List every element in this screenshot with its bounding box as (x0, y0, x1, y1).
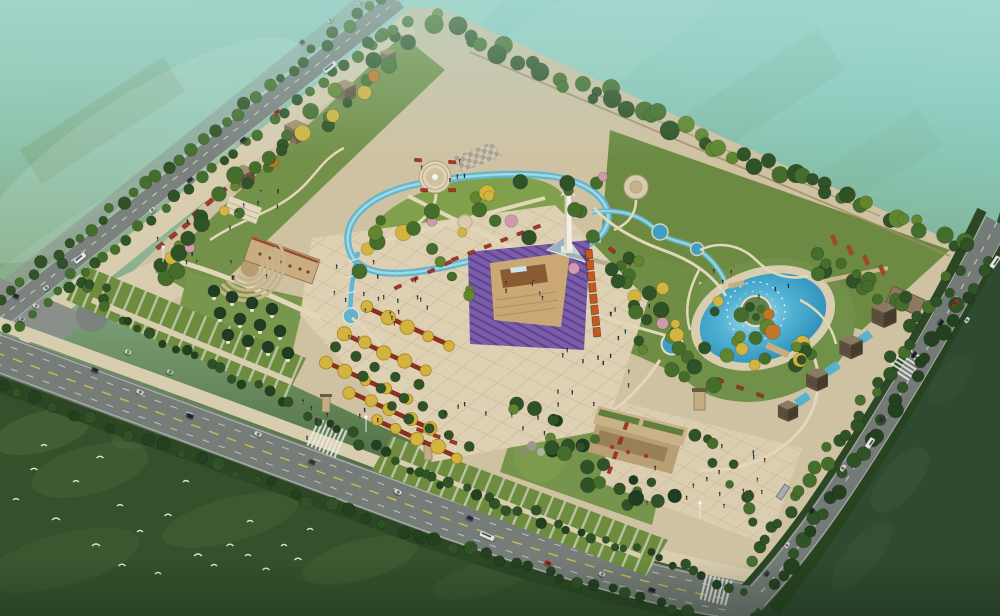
tree (12, 388, 22, 398)
tree (29, 270, 39, 280)
tree (352, 264, 367, 279)
golden-tree (420, 365, 431, 376)
tree (121, 235, 131, 245)
person-head (358, 336, 360, 338)
tree (501, 506, 511, 516)
tree (28, 310, 36, 318)
person (302, 399, 304, 403)
person (359, 413, 361, 417)
person-head (537, 415, 539, 417)
person (758, 294, 760, 298)
person-body (365, 310, 366, 313)
person-body (459, 160, 460, 163)
tree (513, 506, 523, 516)
person-head (186, 260, 188, 262)
tree (447, 272, 456, 281)
person (750, 490, 752, 494)
tree (481, 548, 492, 559)
person-head (157, 237, 159, 239)
person-body (753, 456, 754, 459)
tree (184, 184, 194, 194)
tree (576, 442, 585, 451)
person-head (625, 329, 627, 331)
person-body (731, 271, 732, 274)
person (557, 389, 559, 393)
person-body (277, 206, 278, 209)
tree (668, 489, 682, 503)
person (562, 353, 564, 357)
person-head (648, 304, 650, 306)
tree (836, 258, 847, 269)
person-body (557, 391, 558, 394)
golden-tree (390, 423, 400, 433)
person (719, 492, 721, 496)
golden-tree (452, 453, 463, 464)
tree (593, 476, 605, 488)
person (628, 369, 630, 373)
round-plaza-b-inner (630, 181, 642, 193)
person (363, 292, 365, 296)
person-head (311, 406, 313, 408)
tree (149, 170, 161, 182)
person-head (377, 274, 379, 276)
person-body (358, 337, 359, 340)
person-body (721, 445, 722, 448)
gate-tower-south (694, 390, 705, 410)
tree (602, 536, 609, 543)
person-body (444, 434, 445, 437)
person-body (593, 403, 594, 406)
tree (706, 378, 721, 393)
person (358, 336, 360, 340)
person-body (303, 401, 304, 404)
person-head (236, 211, 238, 213)
courtyard-flower-3 (644, 454, 648, 458)
tree (361, 514, 371, 524)
tree (586, 230, 599, 243)
golden-tree (338, 364, 352, 378)
arch-4 (288, 264, 291, 267)
person-body (415, 279, 416, 282)
tree (859, 196, 872, 209)
person (260, 190, 262, 194)
courtyard-flower-2 (626, 450, 630, 454)
tree (215, 362, 225, 372)
tree (34, 255, 47, 268)
person-body (743, 490, 744, 493)
tree (425, 424, 435, 434)
bench-top (588, 283, 596, 293)
tree (855, 395, 866, 406)
person-body (427, 307, 428, 310)
person-head (378, 297, 380, 299)
person (764, 458, 766, 462)
tree (300, 496, 312, 508)
tree (793, 486, 804, 497)
pond-1 (652, 224, 668, 240)
person-body (567, 349, 568, 352)
person (539, 292, 541, 296)
bench-planter (587, 271, 596, 282)
tree (937, 227, 954, 244)
person-head (758, 294, 760, 296)
person (377, 418, 379, 422)
bench-planter (585, 260, 594, 271)
person (306, 436, 308, 440)
tree (129, 188, 138, 197)
tree (936, 325, 952, 341)
person (243, 203, 245, 207)
person-body (464, 175, 465, 178)
person (753, 455, 755, 459)
bench-planter (591, 316, 600, 327)
tree (471, 489, 482, 500)
tree (464, 290, 475, 301)
golden-tree (398, 354, 412, 368)
person-head (713, 269, 715, 271)
bench-planter (588, 283, 597, 294)
person (266, 274, 268, 278)
person (602, 361, 604, 365)
tree (536, 518, 547, 529)
tree (212, 187, 227, 202)
tree (267, 477, 276, 486)
tree (255, 380, 263, 388)
person-body (157, 238, 158, 241)
person-head (417, 295, 419, 297)
person-head (757, 478, 759, 480)
person-head (505, 281, 507, 283)
tree (351, 351, 362, 362)
person (196, 260, 198, 264)
person-head (426, 305, 428, 307)
person-head (614, 307, 616, 309)
tree (628, 490, 643, 505)
person (277, 204, 279, 208)
person (417, 295, 419, 299)
tree (648, 548, 656, 556)
person (157, 237, 159, 241)
tree (443, 477, 454, 488)
tree (743, 490, 754, 501)
person (505, 281, 507, 285)
tree (633, 544, 641, 552)
tree (713, 296, 724, 307)
person-body (597, 357, 598, 360)
tree (330, 342, 341, 353)
person-head (557, 389, 559, 391)
tree (687, 359, 702, 374)
lamp-head (698, 501, 701, 504)
person-body (421, 167, 422, 170)
person-head (511, 413, 513, 415)
person (444, 433, 446, 437)
lamp-head (364, 415, 367, 418)
person-body (186, 261, 187, 264)
tree (968, 283, 979, 294)
person (654, 466, 656, 470)
tree (426, 243, 438, 255)
tree (748, 518, 757, 527)
person (421, 165, 423, 169)
tree (178, 450, 186, 458)
tree (65, 238, 75, 248)
person (542, 296, 544, 300)
person (552, 415, 554, 419)
person-body (345, 299, 346, 302)
tree (406, 221, 420, 235)
gate-pillar-1 (322, 396, 330, 412)
person-head (628, 369, 630, 371)
tree (105, 424, 115, 434)
person (723, 504, 725, 508)
person-body (719, 493, 720, 496)
tree (897, 382, 908, 393)
rock-2 (537, 448, 545, 456)
tree (522, 230, 537, 245)
person-body (544, 432, 545, 435)
person-head (693, 483, 695, 485)
person-head (505, 289, 507, 291)
person-body (706, 478, 707, 481)
tree (634, 256, 645, 267)
tree (657, 317, 669, 329)
tree (641, 314, 652, 325)
person-head (363, 292, 365, 294)
person (533, 280, 535, 284)
person (365, 308, 367, 312)
person (774, 287, 776, 291)
person-body (257, 202, 258, 205)
tree (171, 245, 187, 261)
tree (710, 307, 719, 316)
person-head (557, 402, 559, 404)
bench-top (421, 189, 428, 192)
person-head (464, 174, 466, 176)
tree (527, 401, 541, 415)
person-head (315, 418, 317, 420)
person-body (229, 227, 230, 230)
person (593, 402, 595, 406)
person (693, 483, 695, 487)
person-head (230, 260, 232, 262)
person (231, 275, 233, 279)
person-head (383, 295, 385, 297)
rock-1 (527, 441, 537, 451)
person (625, 329, 627, 333)
tree (28, 391, 41, 404)
person (187, 219, 189, 223)
person (713, 269, 715, 273)
person-head (391, 316, 393, 318)
person-body (187, 221, 188, 224)
person-head (750, 490, 752, 492)
person (277, 189, 279, 193)
tree (99, 216, 108, 225)
tree (821, 259, 831, 269)
tree (196, 171, 208, 183)
tree (168, 190, 180, 202)
bench-planter (449, 189, 457, 193)
person (537, 415, 539, 419)
person-head (722, 280, 724, 282)
tree (623, 252, 635, 264)
person-body (757, 479, 758, 482)
person-body (553, 416, 554, 419)
monument-tower-shade (565, 195, 567, 250)
person-head (420, 297, 422, 299)
person-body (628, 371, 629, 374)
tree (104, 203, 113, 212)
person-body (363, 293, 364, 296)
person-body (603, 362, 604, 365)
tree (629, 475, 638, 484)
person (753, 450, 755, 454)
person-head (306, 436, 308, 438)
person-head (444, 433, 446, 435)
person-head (364, 408, 366, 410)
person (315, 418, 317, 422)
bench-top (586, 260, 594, 270)
tree (64, 282, 75, 293)
person-head (302, 399, 304, 401)
pine-tree (246, 297, 258, 309)
person-head (706, 477, 708, 479)
tree (110, 245, 120, 255)
site-plan-svg (0, 0, 1000, 616)
tree (132, 221, 143, 232)
tree (611, 543, 619, 551)
tree (945, 288, 955, 298)
tree (212, 457, 226, 471)
person-body (383, 296, 384, 299)
tree (464, 441, 474, 451)
tree (84, 411, 96, 423)
tree (746, 159, 762, 175)
golden-tree (372, 415, 383, 426)
tree (162, 204, 171, 213)
tree (578, 529, 586, 537)
person-head (277, 189, 279, 191)
person-head (562, 353, 564, 355)
person-body (233, 277, 234, 280)
tree (464, 541, 478, 555)
person (557, 402, 559, 406)
tree (897, 213, 909, 225)
person-body (191, 253, 192, 256)
tree (472, 202, 487, 217)
person-body (532, 283, 533, 286)
person-head (593, 402, 595, 404)
person-body (522, 427, 523, 430)
person (457, 174, 459, 178)
person (389, 311, 391, 315)
pine-tree (242, 335, 254, 347)
tree (47, 403, 57, 413)
tree (65, 269, 75, 279)
tree (463, 484, 471, 492)
person-head (788, 284, 790, 286)
person-body (511, 415, 512, 418)
person-head (646, 501, 648, 503)
tree (249, 161, 261, 173)
tree (642, 286, 656, 300)
golden-tree (377, 346, 391, 360)
person (566, 348, 568, 352)
person-body (505, 290, 506, 293)
person (373, 260, 375, 264)
person-head (457, 174, 459, 176)
golden-tree (365, 395, 377, 407)
person-body (750, 491, 751, 494)
pine-tree (282, 347, 294, 359)
tree (788, 548, 799, 559)
person-body (398, 311, 399, 314)
tree (884, 367, 898, 381)
tree (0, 380, 9, 391)
tree (807, 173, 819, 185)
person-body (334, 292, 335, 295)
person-head (365, 308, 367, 310)
tree (671, 319, 680, 328)
person-head (377, 418, 379, 420)
tree (253, 476, 261, 484)
person-head (544, 431, 546, 433)
tree (404, 414, 415, 425)
bench-planter (421, 189, 429, 193)
tree (133, 325, 141, 333)
person (457, 404, 459, 408)
person (383, 295, 385, 299)
person (397, 299, 399, 303)
cube-building (806, 368, 828, 391)
tree (720, 349, 734, 363)
person-body (243, 205, 244, 208)
tree (736, 343, 748, 355)
fountain-statue-top (434, 175, 436, 177)
person-body (628, 384, 629, 387)
aerial-park-rendering (0, 0, 1000, 616)
person-body (649, 305, 650, 308)
person-body (761, 491, 762, 494)
person-head (266, 274, 268, 276)
tree (124, 317, 132, 325)
tree (348, 427, 359, 438)
tree (231, 470, 239, 478)
person (522, 426, 524, 430)
tree (840, 430, 851, 441)
person-head (723, 504, 725, 506)
tree (734, 308, 749, 323)
bench-top (585, 249, 593, 259)
person-head (359, 413, 361, 415)
tree (371, 440, 381, 450)
tree (580, 460, 594, 474)
person-body (327, 414, 328, 417)
person-body (788, 285, 789, 288)
person (257, 201, 259, 205)
person-body (373, 261, 374, 264)
person (348, 335, 350, 339)
island-tree-3 (752, 313, 760, 321)
tree (803, 474, 817, 488)
person-head (610, 354, 612, 356)
person-body (485, 413, 486, 416)
tree (422, 470, 431, 479)
person-body (618, 337, 619, 340)
tree (15, 278, 24, 287)
tree (811, 267, 825, 281)
